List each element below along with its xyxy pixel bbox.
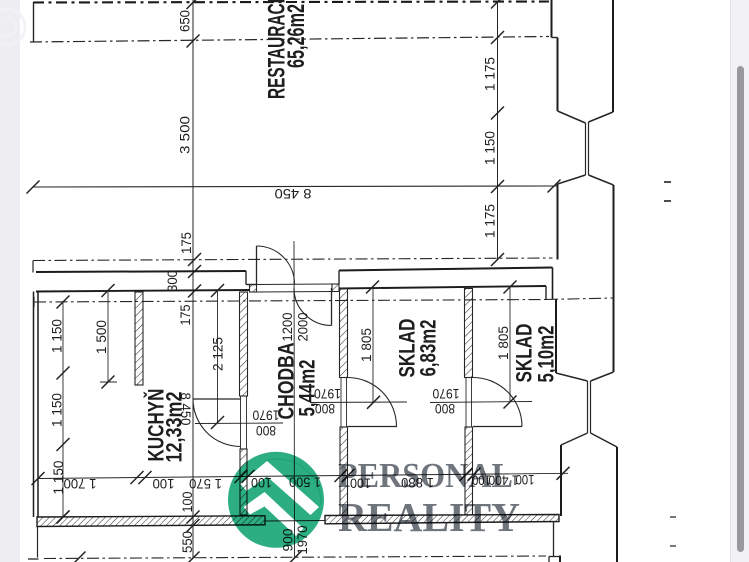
svg-text:REALITY: REALITY (338, 494, 520, 540)
svg-text:PERSONAL: PERSONAL (338, 456, 513, 495)
